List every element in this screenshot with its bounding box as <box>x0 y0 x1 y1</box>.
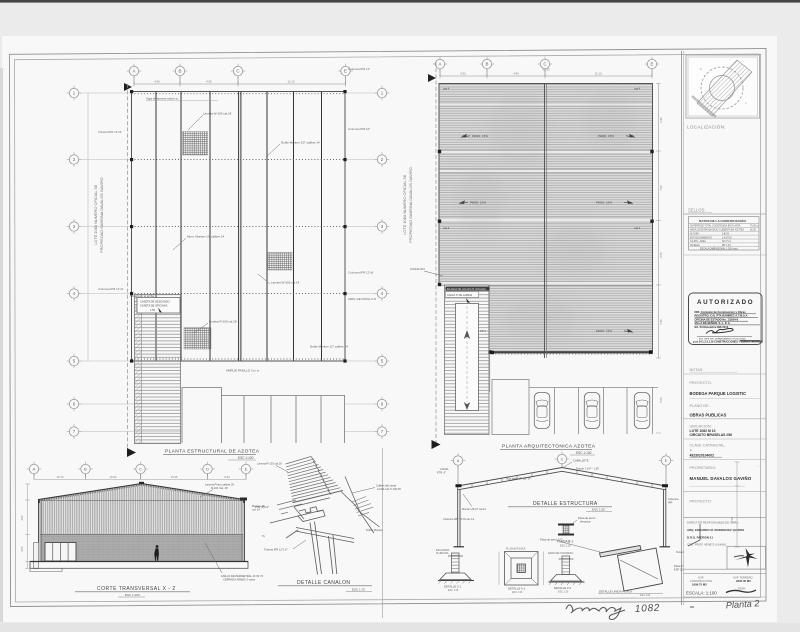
svg-text:ESC 1:100: ESC 1:100 <box>238 456 254 460</box>
svg-text:cap 4: cap 4 <box>443 87 450 91</box>
svg-text:8.20: 8.20 <box>224 475 230 479</box>
svg-text:LOCALIZACIÓN:: LOCALIZACIÓN: <box>687 124 726 130</box>
svg-text:6.95: 6.95 <box>659 117 663 123</box>
svg-text:Columna IPR 12″: Columna IPR 12″ <box>348 67 370 71</box>
svg-text:CABALLETE: CABALLETE <box>573 459 589 463</box>
svg-text:MANUEL DAVALOS GAVIÑO: MANUEL DAVALOS GAVIÑO <box>690 476 752 481</box>
svg-text:4.95: 4.95 <box>513 72 519 76</box>
svg-text:ANILLO DE PERIMETRAL 20 X0 Y0: ANILLO DE PERIMETRAL 20 X0 Y0 <box>221 574 264 578</box>
svg-text:BODEGA PARQUE LOGISTIC: BODEGA PARQUE LOGISTIC <box>690 391 747 396</box>
svg-text:PROPIEDAD SABRINA DAVALOS G: PROPIEDAD SABRINA DAVALOS GAVIRO <box>99 177 104 253</box>
svg-text:Viga de amarre sobre m: Viga de amarre sobre m <box>146 97 179 101</box>
svg-text:CIRCUITO BRUSELAS #56: CIRCUITO BRUSELAS #56 <box>690 433 733 437</box>
svg-text:Tuberia IPR 12″x6: Tuberia IPR 12″x6 <box>98 130 122 134</box>
svg-text:1699.75 M2: 1699.75 M2 <box>692 582 707 586</box>
svg-text:C: C <box>543 62 546 67</box>
svg-text:ESCALA: 1:100: ESCALA: 1:100 <box>686 591 717 596</box>
svg-text:PLANTA ARQUITECTONICA AZOTEA: PLANTA ARQUITECTONICA AZOTEA <box>502 443 596 449</box>
svg-text:13.35: 13.35 <box>171 475 178 479</box>
svg-text:ESC 1:20: ESC 1:20 <box>512 591 523 594</box>
svg-text:A: A <box>33 467 36 472</box>
svg-text:ESC 1:20: ESC 1:20 <box>558 591 569 594</box>
svg-text:AMPL.DE PASILLO D: AMPL.DE PASILLO D <box>348 297 376 301</box>
svg-text:9.85 M: 9.85 M <box>722 233 729 235</box>
svg-text:CASETA DE DESCANSO: CASETA DE DESCANSO <box>140 300 170 304</box>
svg-text:Cortina R-100 cal.18: Cortina R-100 cal.18 <box>209 320 237 324</box>
svg-text:Tuberia IPR 12″1.6″: Tuberia IPR 12″1.6″ <box>264 548 288 552</box>
svg-text:Columna IPR 10″: Columna IPR 10″ <box>348 127 370 131</box>
svg-text:SELLOS:: SELLOS: <box>688 208 705 213</box>
svg-text:Doble Monten 1/2″ calibre 14: Doble Monten 1/2″ calibre 14 <box>281 141 320 145</box>
svg-text:AMPLIE PASILLO 2 m m: AMPLIE PASILLO 2 m m <box>226 369 260 373</box>
svg-text:Placa de acero 1/2″: Placa de acero 1/2″ <box>540 538 563 542</box>
svg-text:CANAL P. DE LAMINA: CANAL P. DE LAMINA <box>447 294 472 297</box>
svg-text:R-101 Cal. 18: R-101 Cal. 18 <box>211 486 228 490</box>
svg-text:PROPIEDAD SABRINA DAVALOS D: PROPIEDAD SABRINA DAVALOS DAVIRO <box>408 167 413 242</box>
svg-text:CASETA DE OFICINAS: CASETA DE OFICINAS <box>140 304 168 308</box>
svg-text:LOTE 1083 NUMERO OFICIAL: LOTE 1083 NUMERO OFICIAL 58 <box>93 185 98 245</box>
svg-text:A: A <box>439 62 442 67</box>
svg-text:PEND. 15%: PEND. 15% <box>598 134 614 138</box>
svg-text:EX. 20 Diciembre 998 2013: EX. 20 Diciembre 998 2013 <box>695 325 729 329</box>
svg-text:1082: 1082 <box>635 603 661 615</box>
svg-text:NIVELES: NIVELES <box>690 245 700 247</box>
svg-text:B: B <box>179 69 182 74</box>
svg-text:AREA CONSTRUIDA BAJO CUBIERTA: AREA CONSTRUIDA BAJO CUBIERTA EN AZOTEA <box>690 229 744 232</box>
svg-text:ESC 1:10: ESC 1:10 <box>560 544 571 547</box>
svg-text:7.30: 7.30 <box>659 319 663 325</box>
svg-text:PEND. 15%: PEND. 15% <box>470 201 486 205</box>
svg-text:DIR. Comision de Construccion: DIR. Comision de Construccion y Obras <box>695 310 747 314</box>
svg-text:FIRMA: FIRMA <box>738 587 746 590</box>
svg-text:PLANO DE:: PLANO DE: <box>690 404 710 408</box>
svg-text:CORTE TRANSVERSAL X - 2: CORTE TRANSVERSAL X - 2 <box>97 586 176 592</box>
svg-text:ESC 1:100: ESC 1:100 <box>125 593 140 597</box>
svg-text:cap 4: cap 4 <box>634 87 641 91</box>
svg-text:7.50: 7.50 <box>730 517 734 523</box>
svg-text:Monten ZF-07 cal.14: Monten ZF-07 cal.14 <box>462 507 486 511</box>
svg-text:REGISTRO: CAL.PTA.RAMIREZ A.T.: REGISTRO: CAL.PTA.RAMIREZ A.T.M.S.A <box>695 314 748 318</box>
svg-text:DETALLE CANALON: DETALLE CANALON <box>297 580 350 586</box>
svg-text:Viga doble ZF cal. 14: Viga doble ZF cal. 14 <box>506 477 531 481</box>
svg-text:E: E <box>651 62 654 67</box>
svg-text:SUJETADA: SUJETADA <box>436 552 449 555</box>
svg-text:cap 4: cap 4 <box>634 226 641 230</box>
svg-text:PLANTA ESTRUCTURAL DE AZOTE: PLANTA ESTRUCTURAL DE AZOTEA <box>165 449 260 455</box>
svg-text:DETALLE UNION PLACA: DETALLE UNION PLACA <box>599 590 632 594</box>
svg-text:DATOS DE LA CONSTRUCCIÓN: DATOS DE LA CONSTRUCCIÓN <box>699 218 746 223</box>
svg-text:AUTORIZADO: AUTORIZADO <box>697 299 754 306</box>
svg-text:7.00: 7.00 <box>659 185 663 191</box>
svg-text:CLAVE CATRASTAL:: CLAVE CATRASTAL: <box>690 443 726 447</box>
svg-text:Doble Monten: Doble Monten <box>366 528 383 532</box>
svg-text:Lamina R-101 cal.18: Lamina R-101 cal.18 <box>257 462 282 466</box>
svg-text:ESTACIONAMIENTO: ESTACIONAMIENTO <box>690 236 712 239</box>
svg-text:Columna: Columna <box>668 497 679 501</box>
svg-text:DETALLE Z-2: DETALLE Z-2 <box>554 586 572 590</box>
svg-text:UBICACION:: UBICACION: <box>690 424 712 428</box>
svg-text:A: A <box>133 69 136 74</box>
svg-text:CANA 141.5 136.35: CANA 141.5 136.35 <box>377 487 401 491</box>
svg-text:ESC 1:20: ESC 1:20 <box>448 589 459 592</box>
svg-text:Placa de acero: Placa de acero <box>578 516 596 520</box>
svg-text:E: E <box>344 69 347 74</box>
svg-text:ALTURA: ALTURA <box>690 232 699 235</box>
svg-text:2200.00 M2: 2200.00 M2 <box>736 579 751 583</box>
svg-text:SUPERFICIE TOTAL CONSTRUIDA EN: SUPERFICIE TOTAL CONSTRUIDA EN PLANTA <box>690 225 741 228</box>
svg-text:CAJON - AREA: CAJON - AREA <box>690 240 706 243</box>
svg-text:22.00: 22.00 <box>543 68 550 72</box>
svg-text:ESC 1:100: ESC 1:100 <box>576 451 592 455</box>
svg-text:A: A <box>457 459 460 463</box>
svg-text:Tu: Tu <box>262 534 266 538</box>
svg-text:Calibre del canal: Calibre del canal <box>376 484 396 488</box>
svg-text:ESC 1:05: ESC 1:05 <box>640 594 651 597</box>
svg-text:LOTE 1083 NUMERO OFICIAL: LOTE 1083 NUMERO OFICIAL 58 <box>402 175 407 235</box>
svg-text:ARQ. EDUARDO M. RODRIGUEZ QUIR: ARQ. EDUARDO M. RODRIGUEZ QUIROS <box>687 528 744 532</box>
svg-text:PTR. 6″: PTR. 6″ <box>437 470 446 474</box>
svg-text:DETALLE A-1: DETALLE A-1 <box>508 587 526 591</box>
svg-text:CANAL: CANAL <box>440 467 449 471</box>
svg-text:PB Y AZ: PB Y AZ <box>722 244 731 247</box>
svg-text:12.10: 12.10 <box>595 72 602 76</box>
svg-text:B: B <box>84 467 87 472</box>
svg-text:Placa 2″: Placa 2″ <box>674 564 684 568</box>
svg-text:Lamina W-100 cal.14: Lamina W-100 cal.14 <box>271 281 300 285</box>
svg-text:4923020104002: 4923020104002 <box>690 453 715 457</box>
svg-text:CERRADO ARMEX 2 varas: CERRADO ARMEX 2 varas <box>223 577 256 581</box>
svg-text:3.60: 3.60 <box>20 546 24 552</box>
svg-text:PEND. 15%: PEND. 15% <box>596 201 612 205</box>
svg-text:Columna IPR 12″x6 cal. 14: Columna IPR 12″x6 cal. 14 <box>443 517 475 521</box>
svg-text:C: C <box>139 467 142 472</box>
svg-text:6.50: 6.50 <box>659 252 663 258</box>
svg-text:Mont. Monten 1/2 calibre 14: Mont. Monten 1/2 calibre 14 <box>187 235 225 239</box>
svg-text:Doble Monten 12″ calibre 14: Doble Monten 12″ calibre 14 <box>310 345 348 349</box>
svg-text:38 X 5 m: 38 X 5 m <box>722 241 731 243</box>
svg-text:10.50: 10.50 <box>110 475 117 479</box>
svg-text:PTR (2)1.6″: PTR (2)1.6″ <box>255 505 269 509</box>
svg-text:elevacion: elevacion <box>580 519 592 523</box>
svg-text:ESC 1:75: ESC 1:75 <box>352 587 365 591</box>
svg-text:4.95: 4.95 <box>206 80 212 84</box>
svg-text:PROYECTO:: PROYECTO: <box>690 381 712 385</box>
svg-text:1.50: 1.50 <box>150 308 156 312</box>
svg-text:DETALLE Z-1: DETALLE Z-1 <box>444 585 462 589</box>
svg-text:BAJADA DE AGUAS PLUVIALES: BAJADA DE AGUAS PLUVIALES <box>447 287 486 291</box>
svg-text:PROYECTO:: PROYECTO: <box>690 499 712 503</box>
svg-text:ESCALA DIMENSIONAL 1:100 (mt: ESCALA DIMENSIONAL 1:100 (mts) <box>700 248 738 251</box>
svg-text:75.00 m: 75.00 m <box>750 226 758 228</box>
svg-text:C: C <box>236 69 239 74</box>
svg-text:E: E <box>245 467 248 472</box>
svg-text:PEND. 15%: PEND. 15% <box>596 329 612 333</box>
svg-text:PEND. 15%: PEND. 15% <box>472 134 488 138</box>
svg-text:---: --- <box>757 465 760 468</box>
svg-text:5.00: 5.00 <box>659 397 663 403</box>
svg-text:DETALLE ESTRUCTURA: DETALLE ESTRUCTURA <box>533 501 598 507</box>
svg-text:10.70: 10.70 <box>57 475 64 479</box>
svg-text:26.00: 26.00 <box>750 230 756 232</box>
svg-text:4.50: 4.50 <box>154 80 160 84</box>
svg-text:PROPIETARIO:: PROPIETARIO: <box>690 466 717 470</box>
svg-text:Tirante 1 1/4″ - 1.50: Tirante 1 1/4″ - 1.50 <box>576 467 599 471</box>
svg-text:E: E <box>665 459 668 463</box>
svg-text:D: D <box>206 467 209 472</box>
svg-text:DADO DE CONCRETO: DADO DE CONCRETO <box>548 552 573 555</box>
svg-text:Lamina W-100 cal.18: Lamina W-100 cal.18 <box>203 112 232 116</box>
svg-text:NOTAS:: NOTAS: <box>690 368 704 372</box>
svg-text:cap 4: cap 4 <box>443 226 450 230</box>
svg-text:4.50: 4.50 <box>20 515 24 521</box>
svg-text:12.10: 12.10 <box>288 80 295 84</box>
svg-text:ESP 1/2: ESP 1/2 <box>674 567 684 571</box>
svg-text:Tensor: Tensor <box>676 550 684 554</box>
svg-text:CANALON: CANALON <box>410 267 425 271</box>
svg-text:Lamina Pintro calibre 26: Lamina Pintro calibre 26 <box>205 483 234 487</box>
svg-text:IPR: IPR <box>668 500 672 504</box>
svg-text:4.50: 4.50 <box>460 72 466 76</box>
svg-text:B: B <box>486 62 489 67</box>
svg-text:3 AUTOS: 3 AUTOS <box>722 236 732 239</box>
svg-text:PL 30x30 PLACA: PL 30x30 PLACA <box>506 548 526 551</box>
svg-text:ESC 1:50: ESC 1:50 <box>592 507 605 511</box>
svg-text:OBRAS PUBLICAS: OBRAS PUBLICAS <box>690 412 727 417</box>
svg-text:OFICINA DE ESTADO No. 132/54-8: OFICINA DE ESTADO No. 132/54-8 <box>695 317 739 321</box>
svg-text:Columna IPR 12″x6: Columna IPR 12″x6 <box>98 287 124 291</box>
svg-text:C: C <box>561 458 564 462</box>
svg-text:Columna IPR 12″x6: Columna IPR 12″x6 <box>348 271 374 275</box>
